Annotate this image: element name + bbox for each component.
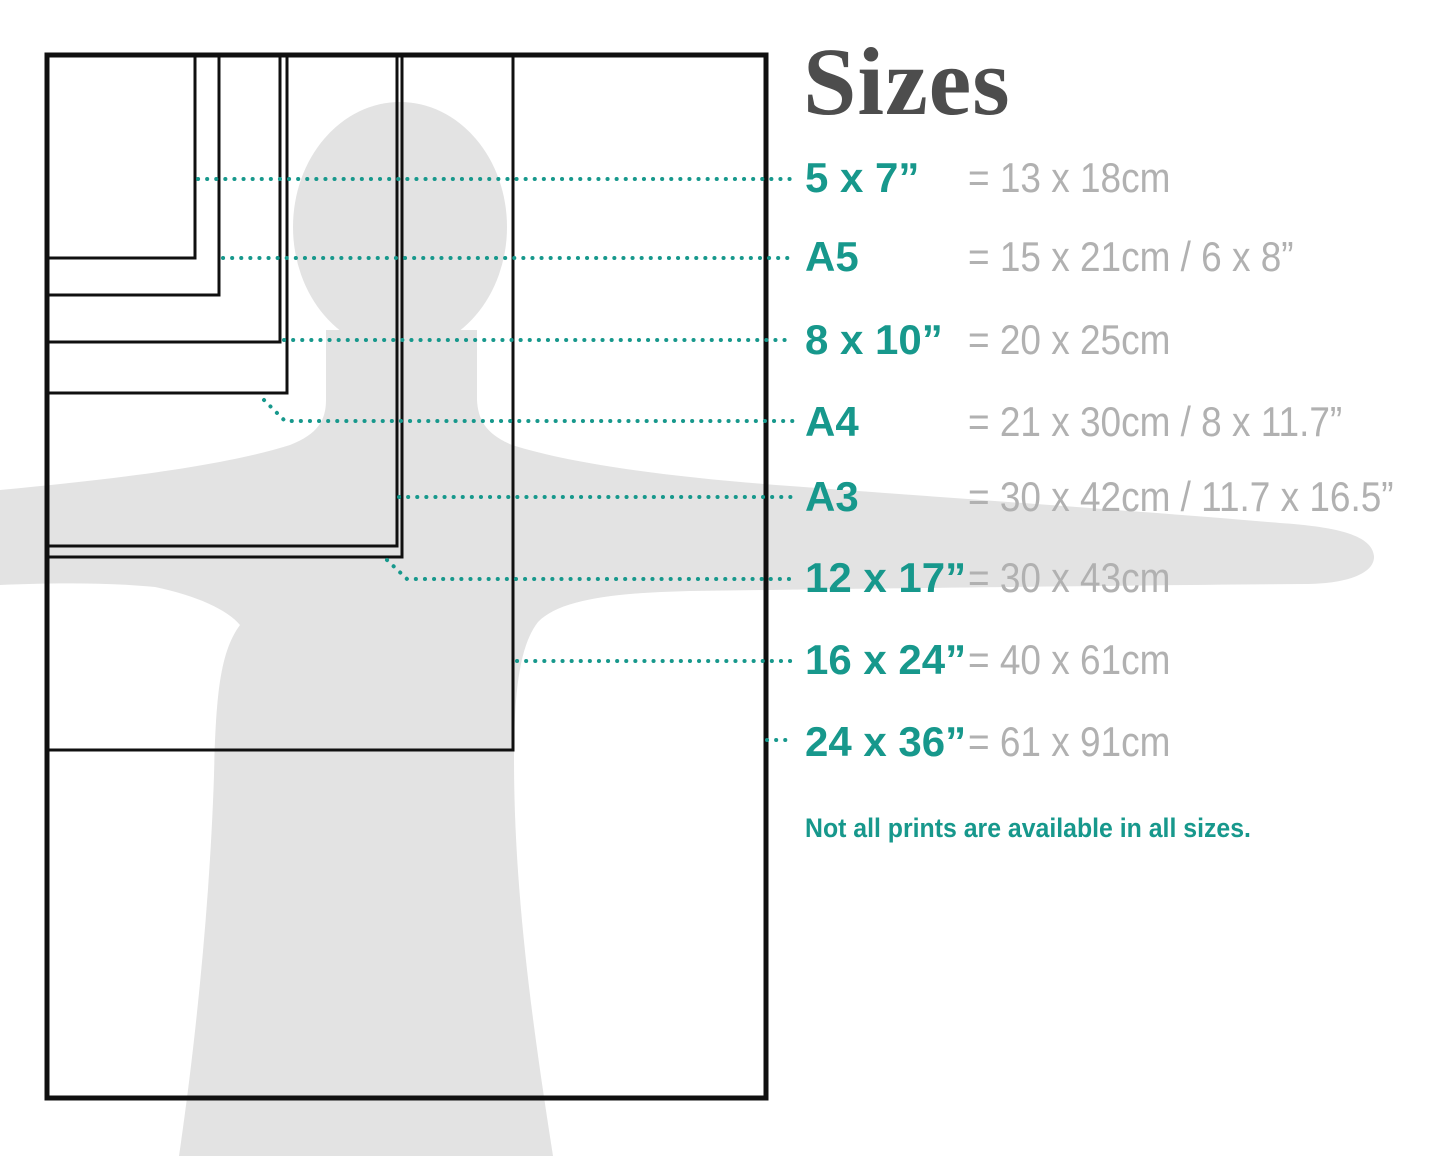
size-label: A3 (805, 475, 859, 519)
size-label: A5 (805, 235, 859, 279)
size-metric: = 40 x 61cm (968, 638, 1170, 682)
size-metric: = 30 x 43cm (968, 556, 1170, 600)
size-row-a5: A5 = 15 x 21cm / 6 x 8” (805, 235, 1425, 279)
size-metric: = 21 x 30cm / 8 x 11.7” (968, 400, 1342, 444)
availability-note: Not all prints are available in all size… (805, 812, 1251, 844)
size-row-a3: A3 = 30 x 42cm / 11.7 x 16.5” (805, 475, 1425, 519)
size-label: 5 x 7” (805, 156, 919, 200)
size-label: A4 (805, 400, 859, 444)
size-row-12x17: 12 x 17” = 30 x 43cm (805, 556, 1425, 600)
size-row-24x36: 24 x 36” = 61 x 91cm (805, 720, 1425, 764)
size-metric: = 20 x 25cm (968, 318, 1170, 362)
silhouette-head (293, 102, 507, 352)
size-metric: = 30 x 42cm / 11.7 x 16.5” (968, 475, 1394, 519)
page-title: Sizes (803, 34, 1011, 130)
sizes-infographic: Sizes 5 x 7” = 13 x 18cm A5 = 15 x 21cm … (0, 0, 1445, 1156)
size-label: 12 x 17” (805, 556, 966, 600)
size-rect-5x7 (47, 55, 195, 258)
size-metric: = 13 x 18cm (968, 156, 1170, 200)
size-row-a4: A4 = 21 x 30cm / 8 x 11.7” (805, 400, 1425, 444)
size-row-8x10: 8 x 10” = 20 x 25cm (805, 318, 1425, 362)
size-label: 24 x 36” (805, 720, 966, 764)
size-row-5x7: 5 x 7” = 13 x 18cm (805, 156, 1425, 200)
size-rect-8x10 (47, 55, 280, 342)
size-metric: = 15 x 21cm / 6 x 8” (968, 235, 1294, 279)
size-row-16x24: 16 x 24” = 40 x 61cm (805, 638, 1425, 682)
size-metric: = 61 x 91cm (968, 720, 1170, 764)
size-label: 8 x 10” (805, 318, 943, 362)
size-label: 16 x 24” (805, 638, 966, 682)
